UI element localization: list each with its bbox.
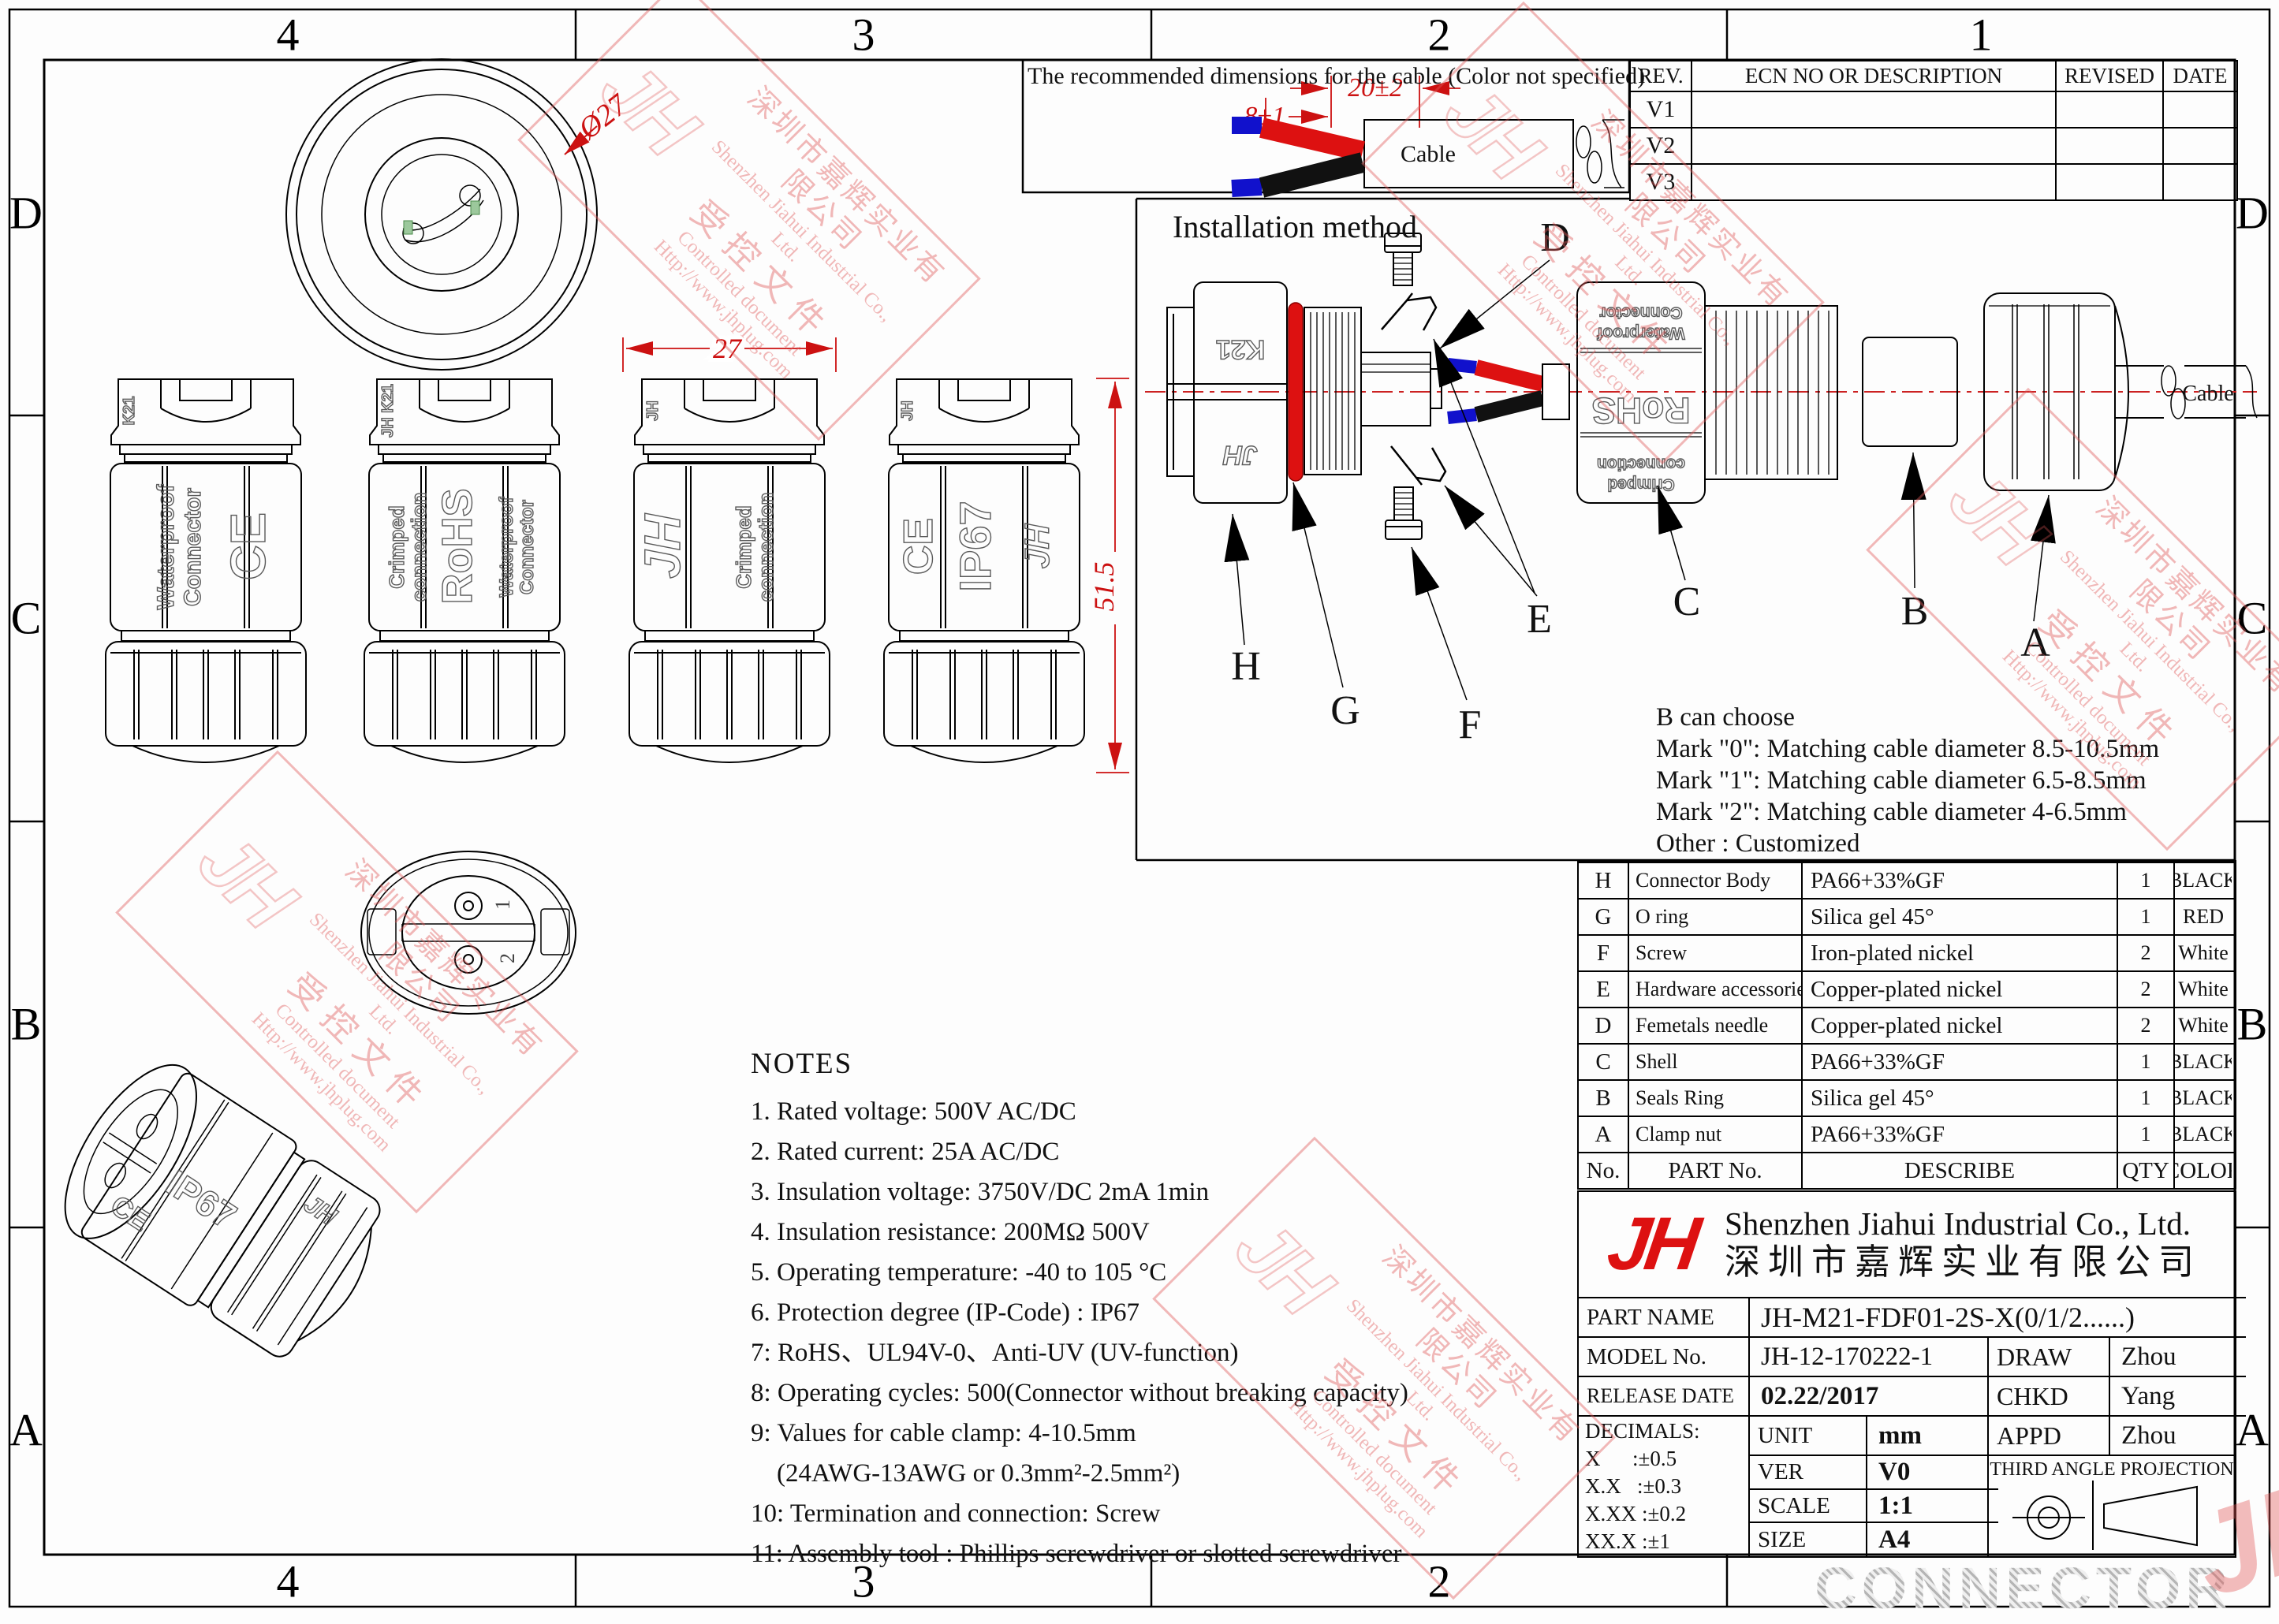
company-header: JH Shenzhen Jiahui Industrial Co., Ltd. … <box>1579 1192 2233 1297</box>
part-name-cell: O ring <box>1628 900 1801 934</box>
note-item: 3. Insulation voltage: 3750V/DC 2mA 1min <box>751 1172 1587 1212</box>
b-choose-line: B can choose <box>1656 702 2224 733</box>
title-block: JH Shenzhen Jiahui Industrial Co., Ltd. … <box>1577 1190 2236 1558</box>
part-color-cell: COLOR <box>2173 1153 2232 1188</box>
view1-text: Connector <box>180 488 206 606</box>
decimals-line: X.X :±0.3 <box>1585 1473 1681 1500</box>
part-color-cell: BLACK <box>2173 863 2232 898</box>
face-view <box>361 851 576 1014</box>
ver-value: V0 <box>1866 1455 1998 1488</box>
b-choose-line: Other : Customized <box>1656 828 2224 859</box>
part-color-cell: BLACK <box>2173 1045 2232 1079</box>
rev-revised <box>2055 129 2162 163</box>
view1-text: Waterproof <box>153 484 179 610</box>
revision-row: V3 <box>1631 163 2236 199</box>
part-clip-top-E <box>1382 293 1436 330</box>
view2-text: Connector <box>517 500 538 594</box>
cable-box-title: The recommended dimensions for the cable… <box>1028 63 1627 90</box>
scale-label: SCALE <box>1748 1488 1874 1522</box>
note-item: 7: RoHS、UL94V-0、Anti-UV (UV-function) <box>751 1333 1587 1373</box>
model-label: MODEL No. <box>1579 1336 1755 1376</box>
part-no-cell: H <box>1579 863 1628 898</box>
view3-jh-mark: JH <box>634 512 691 579</box>
rev-version: V1 <box>1631 92 1691 127</box>
b-choose-line: Mark "0": Matching cable diameter 8.5-10… <box>1656 733 2224 765</box>
dim-diameter: Ø27 <box>572 88 635 147</box>
parts-table-row: B Seals Ring Silica gel 45° 1 BLACK <box>1579 1079 2235 1116</box>
ecn-col-header: ECN NO OR DESCRIPTION <box>1691 61 2055 91</box>
parts-table-row: A Clamp nut PA66+33%GF 1 BLACK <box>1579 1116 2235 1152</box>
rev-date <box>2162 92 2236 127</box>
unit-value: mm <box>1866 1415 1998 1455</box>
notes-title: NOTES <box>751 1047 1587 1081</box>
view3-text: Crimped <box>732 505 755 588</box>
notes-section: NOTES 1. Rated voltage: 500V AC/DC2. Rat… <box>751 1047 1587 1574</box>
rev-description <box>1691 165 2055 199</box>
note-item: 1. Rated voltage: 500V AC/DC <box>751 1092 1587 1132</box>
iso-jh-mark: JH <box>299 1190 342 1231</box>
note-item: 11: Assembly tool : Phillips screwdriver… <box>751 1534 1587 1574</box>
part-name-cell: Shell <box>1628 1045 1801 1079</box>
note-item: (24AWG-13AWG or 0.3mm²-2.5mm²) <box>751 1454 1587 1494</box>
size-value: A4 <box>1866 1522 1998 1556</box>
view4-ce-mark: CE <box>896 518 942 575</box>
part-name-cell: Femetals needle <box>1628 1008 1801 1043</box>
view4-ip67-mark: IP67 <box>950 501 1000 591</box>
drawing-sheet: { "border": { "top": ["4","3","2","1"], … <box>0 0 2279 1616</box>
side-view-markings: K21 Waterproof Connector CE JH K21 Crimp… <box>121 384 1057 609</box>
callout-D: D <box>1540 215 1570 260</box>
view2-text: connection <box>407 493 431 602</box>
projection-label: THIRD ANGLE PROJECTION <box>1990 1459 2233 1481</box>
note-item: 2. Rated current: 25A AC/DC <box>751 1132 1587 1172</box>
draw-value: Zhou <box>2109 1336 2246 1376</box>
b-can-choose-note: B can chooseMark "0": Matching cable dia… <box>1656 702 2224 859</box>
installation-title: Installation method <box>1173 208 1417 245</box>
unit-label: UNIT <box>1748 1415 1874 1455</box>
rev-col-header: REV. <box>1631 61 1691 91</box>
body-k21-mark: K21 <box>1216 334 1265 364</box>
parts-table-row: F Screw Iron-plated nickel 2 White <box>1579 934 2235 970</box>
shell-mark-waterproof: Waterproof <box>1596 324 1684 342</box>
revised-col-header: REVISED <box>2055 61 2162 91</box>
parts-table-row: D Femetals needle Copper-plated nickel 2… <box>1579 1007 2235 1043</box>
view1-ce-mark: CE <box>222 512 276 580</box>
view2-cap-mark: JH K21 <box>379 384 397 438</box>
parts-table-row: C Shell PA66+33%GF 1 BLACK <box>1579 1043 2235 1079</box>
part-color-cell: BLACK <box>2173 1081 2232 1116</box>
rev-description <box>1691 129 2055 163</box>
appd-label: APPD <box>1987 1415 2117 1455</box>
chkd-label: CHKD <box>1987 1376 2117 1415</box>
rev-date <box>2162 129 2236 163</box>
view4-cap-mark: JH <box>899 400 916 421</box>
draw-label: DRAW <box>1987 1336 2117 1376</box>
part-name-cell: Hardware accessories <box>1628 972 1801 1007</box>
part-color-cell: White <box>2173 972 2232 1007</box>
callout-H: H <box>1231 644 1261 689</box>
rev-version: V2 <box>1631 129 1691 163</box>
model-value: JH-12-170222-1 <box>1748 1336 1998 1376</box>
date-col-header: DATE <box>2162 61 2236 91</box>
chkd-value: Yang <box>2109 1376 2246 1415</box>
view3-text: connection <box>754 493 778 602</box>
part-oring-G <box>1289 303 1303 481</box>
view1-cap-mark: K21 <box>121 397 138 426</box>
view3-cap-mark: JH <box>644 400 662 421</box>
parts-table-row: H Connector Body PA66+33%GF 1 BLACK <box>1579 862 2235 898</box>
part-describe-cell: PA66+33%GF <box>1801 1117 2117 1152</box>
note-item: 9: Values for cable clamp: 4-10.5mm <box>751 1414 1587 1454</box>
part-no-cell: E <box>1579 972 1628 1007</box>
part-qty-cell: 2 <box>2117 972 2173 1007</box>
part-describe-cell: Copper-plated nickel <box>1801 1008 2117 1043</box>
part-describe-cell: PA66+33%GF <box>1801 863 2117 898</box>
ver-label: VER <box>1748 1455 1874 1488</box>
part-clip-bottom-E <box>1391 446 1445 485</box>
release-date-label: RELEASE DATE <box>1579 1376 1755 1415</box>
view2-text: Waterproof <box>496 496 517 597</box>
callout-F: F <box>1459 702 1482 747</box>
installation-cable-label: Cable <box>2182 382 2233 406</box>
appd-value: Zhou <box>2109 1415 2246 1455</box>
part-qty-cell: QTY <box>2117 1153 2173 1188</box>
view2-text: Crimped <box>385 505 408 588</box>
part-color-cell: White <box>2173 1008 2232 1043</box>
size-label: SIZE <box>1748 1522 1874 1556</box>
decimals-line: X.XX :±0.2 <box>1585 1500 1686 1528</box>
revision-table-header: REV. ECN NO OR DESCRIPTION REVISED DATE <box>1631 61 2236 91</box>
part-describe-cell: Copper-plated nickel <box>1801 972 2117 1007</box>
decimals-line: X :±0.5 <box>1585 1445 1677 1473</box>
shell-mark-rohs: RoHS <box>1591 390 1690 431</box>
callout-E: E <box>1527 597 1552 642</box>
part-describe-cell: Silica gel 45° <box>1801 900 2117 934</box>
body-jh-mark: JH <box>1222 440 1258 470</box>
iso-ip67-mark: IP67 <box>159 1162 244 1237</box>
note-item: 6. Protection degree (IP-Code) : IP67 <box>751 1293 1587 1333</box>
part-name-label: PART NAME <box>1579 1297 1755 1336</box>
note-item: 10: Termination and connection: Screw <box>751 1494 1587 1534</box>
part-no-cell: D <box>1579 1008 1628 1043</box>
decimals-line: DECIMALS: <box>1585 1417 1700 1445</box>
part-screw-bottom-F <box>1386 487 1422 539</box>
parts-table-row: G O ring Silica gel 45° 1 RED <box>1579 898 2235 934</box>
part-name-cell: PART No. <box>1628 1153 1801 1188</box>
note-item: 5. Operating temperature: -40 to 105 °C <box>751 1253 1587 1293</box>
parts-table: H Connector Body PA66+33%GF 1 BLACK G O … <box>1577 860 2236 1190</box>
part-no-cell: F <box>1579 936 1628 970</box>
parts-table-row: No. PART No. DESCRIBE QTY COLOR <box>1579 1152 2235 1188</box>
part-qty-cell: 1 <box>2117 900 2173 934</box>
part-describe-cell: PA66+33%GF <box>1801 1045 2117 1079</box>
part-name-value: JH-M21-FDF01-2S-X(0/1/2......) <box>1748 1297 2246 1336</box>
note-item: 4. Insulation resistance: 200MΩ 500V <box>751 1212 1587 1253</box>
dim-height: 51.5 <box>1088 562 1120 612</box>
part-name-cell: Seals Ring <box>1628 1081 1801 1116</box>
part-qty-cell: 1 <box>2117 1045 2173 1079</box>
part-describe-cell: DESCRIBE <box>1801 1153 2117 1188</box>
part-qty-cell: 1 <box>2117 1081 2173 1116</box>
rev-version: V3 <box>1631 165 1691 199</box>
dim-width: 27 <box>713 333 743 364</box>
part-no-cell: G <box>1579 900 1628 934</box>
part-qty-cell: 2 <box>2117 1008 2173 1043</box>
part-describe-cell: Iron-plated nickel <box>1801 936 2117 970</box>
callout-B: B <box>1901 589 1929 634</box>
pin1-label: 1 <box>491 900 514 910</box>
view2-rohs-mark: RoHS <box>434 489 481 605</box>
part-qty-cell: 1 <box>2117 1117 2173 1152</box>
part-qty-cell: 1 <box>2117 863 2173 898</box>
release-date-value: 02.22/2017 <box>1748 1376 1998 1415</box>
part-color-cell: BLACK <box>2173 1117 2232 1152</box>
part-name-cell: Connector Body <box>1628 863 1801 898</box>
b-choose-line: Mark "1": Matching cable diameter 6.5-8.… <box>1656 765 2224 796</box>
top-view-circle <box>286 59 597 370</box>
company-logo: JH <box>1572 1201 1730 1287</box>
callout-A: A <box>2020 620 2050 665</box>
part-name-cell: Clamp nut <box>1628 1117 1801 1152</box>
decimals-block: DECIMALS:X :±0.5X.X :±0.3X.XX :±0.2XX.X … <box>1579 1415 1753 1556</box>
isometric-view: CE IP67 JH <box>39 1045 405 1378</box>
pin2-label: 2 <box>496 953 519 963</box>
shell-mark-connection: connection <box>1597 455 1685 473</box>
scale-value: 1:1 <box>1866 1488 1998 1522</box>
part-color-cell: White <box>2173 936 2232 970</box>
iso-ce-mark: CE <box>105 1189 155 1238</box>
revision-table: REV. ECN NO OR DESCRIPTION REVISED DATE … <box>1629 60 2238 201</box>
decimals-line: XX.X :±1 <box>1585 1528 1670 1555</box>
note-item: 8: Operating cycles: 500(Connector witho… <box>751 1373 1587 1414</box>
revision-row: V1 <box>1631 91 2236 127</box>
revision-row: V2 <box>1631 127 2236 163</box>
part-color-cell: RED <box>2173 900 2232 934</box>
shell-mark-crimped: Crimped <box>1607 475 1674 494</box>
connector-banner: CONNECTOR <box>1768 1555 2279 1622</box>
rev-revised <box>2055 165 2162 199</box>
part-qty-cell: 2 <box>2117 936 2173 970</box>
view4-jh-mark: JH <box>1018 523 1057 568</box>
callout-G: G <box>1330 688 1360 733</box>
company-name-en: Shenzhen Jiahui Industrial Co., Ltd. <box>1725 1205 2202 1242</box>
company-name-cn: 深圳市嘉辉实业有限公司 <box>1725 1242 2202 1283</box>
shell-mark-connector: Connector <box>1600 304 1683 322</box>
rev-description <box>1691 92 2055 127</box>
parts-table-row: E Hardware accessories Copper-plated nic… <box>1579 970 2235 1007</box>
cable-box-label: Cable <box>1401 141 1456 167</box>
callout-C: C <box>1673 579 1701 624</box>
rev-revised <box>2055 92 2162 127</box>
b-choose-line: Mark "2": Matching cable diameter 4-6.5m… <box>1656 796 2224 828</box>
part-name-cell: Screw <box>1628 936 1801 970</box>
rev-date <box>2162 165 2236 199</box>
part-describe-cell: Silica gel 45° <box>1801 1081 2117 1116</box>
